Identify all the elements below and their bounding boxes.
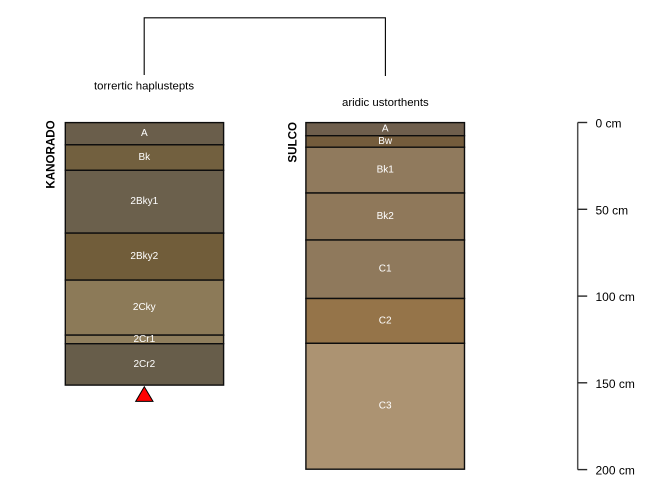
svg-text:Bk: Bk: [138, 152, 151, 163]
svg-text:KANORADO: KANORADO: [44, 120, 57, 188]
svg-text:2Cr2: 2Cr2: [133, 359, 155, 370]
svg-text:aridic ustorthents: aridic ustorthents: [342, 97, 429, 109]
svg-text:100 cm: 100 cm: [596, 290, 635, 304]
svg-text:A: A: [382, 124, 389, 135]
svg-text:torrertic haplustepts: torrertic haplustepts: [94, 81, 194, 93]
svg-text:A: A: [141, 128, 148, 139]
svg-text:2Bky1: 2Bky1: [130, 196, 158, 207]
svg-text:C2: C2: [379, 315, 392, 326]
svg-text:C1: C1: [379, 264, 392, 275]
svg-text:2Bky2: 2Bky2: [130, 251, 158, 262]
svg-text:2Cky: 2Cky: [133, 302, 156, 313]
svg-text:C3: C3: [379, 401, 392, 412]
svg-text:Bw: Bw: [378, 136, 393, 147]
svg-text:Bk1: Bk1: [377, 165, 395, 176]
svg-text:SULCO: SULCO: [286, 122, 299, 163]
svg-text:0 cm: 0 cm: [596, 117, 622, 131]
svg-text:50 cm: 50 cm: [596, 203, 629, 217]
svg-text:Bk2: Bk2: [377, 211, 395, 222]
svg-text:200 cm: 200 cm: [596, 464, 635, 478]
svg-text:150 cm: 150 cm: [596, 377, 635, 391]
